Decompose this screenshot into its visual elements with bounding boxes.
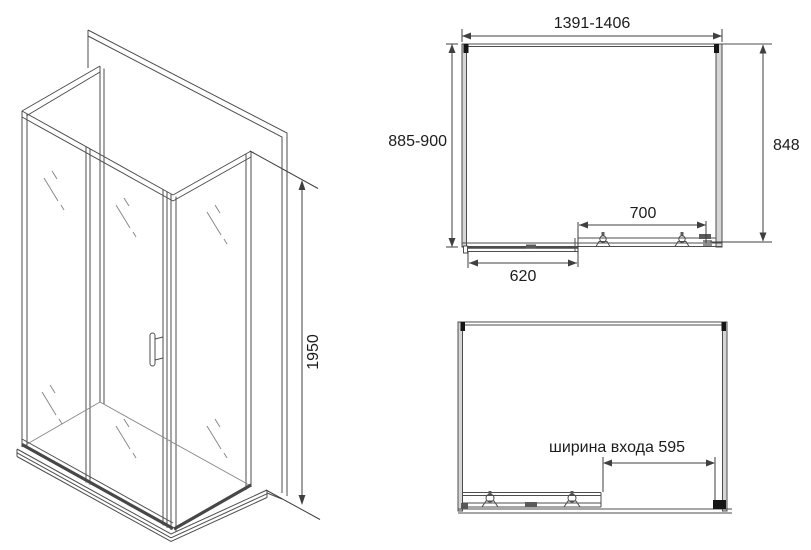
plan-width-dimension: 1391-1406 (462, 15, 722, 42)
entrance-width-dimension: ширина входа 595 (549, 439, 715, 500)
front-sliding-door (462, 491, 601, 507)
plan-opening-label: 700 (630, 205, 657, 222)
technical-drawing-page: 1950 (0, 0, 811, 550)
plan-width-label: 1391-1406 (554, 15, 631, 32)
plan-opening-dimension: 700 (578, 205, 706, 267)
plan-door-dimension: 620 (468, 252, 577, 285)
glass-reflection-marks (42, 171, 227, 458)
technical-drawing-canvas: 1950 (0, 0, 811, 550)
plan-depth-dimension: 885-900 (388, 44, 458, 247)
shower-tray (17, 402, 267, 542)
height-dimension-label: 1950 (305, 334, 322, 370)
height-dimension: 1950 (250, 151, 322, 520)
plan-door-label: 620 (510, 268, 537, 285)
plan-frame (462, 44, 772, 247)
door-handle (150, 333, 163, 366)
entrance-width-label: ширина входа 595 (549, 439, 685, 456)
front-view: ширина входа 595 (458, 322, 732, 513)
front-frame (458, 322, 732, 513)
top-frame (22, 66, 251, 201)
isometric-view: 1950 (17, 30, 322, 542)
plan-side-label: 848 (773, 137, 800, 154)
plan-side-dimension: 848 (710, 45, 800, 243)
plan-depth-label: 885-900 (388, 133, 447, 150)
plan-view: 1391-1406 885-900 848 700 (388, 15, 800, 285)
